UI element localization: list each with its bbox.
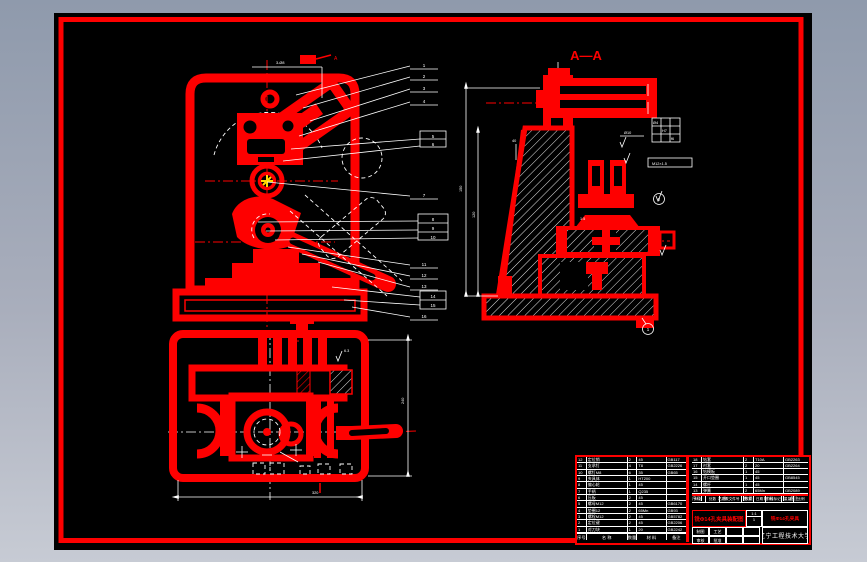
svg-text:11: 11 <box>422 262 427 267</box>
bom-left-rows: 12 定位销 2 45 GB117 11 支承钉 4 T8 GB2226 10 <box>577 457 686 533</box>
svg-text:10: 10 <box>430 235 436 240</box>
hatch-patch-right <box>330 370 352 394</box>
plan-dim-h: 240 <box>401 398 405 404</box>
bom-right-rows: 18 钻套 2 T10A GB2263 17 衬套 2 20 GB2264 16 <box>692 457 808 494</box>
svg-text:M12×1.5: M12×1.5 <box>652 162 667 166</box>
front-dim-label: 3-Ø8 <box>276 61 284 65</box>
locating-block <box>237 113 303 165</box>
svg-text:14: 14 <box>430 294 436 299</box>
svg-text:12: 12 <box>421 273 427 278</box>
svg-text:16: 16 <box>421 314 427 319</box>
svg-text:15: 15 <box>430 303 436 308</box>
section-label: A—A <box>570 48 602 63</box>
title-zone: 标记 处数 更改文件号 签字 日期 阶段标记 重量 比例 铣Φ14孔夹具装配图 … <box>692 494 808 542</box>
svg-text:Ø4: Ø4 <box>653 121 658 125</box>
hatch-patch-left <box>297 371 310 393</box>
svg-text:H7: H7 <box>662 129 667 133</box>
taper-label: 1:5 <box>580 217 585 221</box>
scale-cell: 1:1 1 <box>746 510 762 527</box>
plan-dim-w: 320 <box>312 491 318 495</box>
svg-text:120: 120 <box>472 212 476 218</box>
organization-name: 辽宁工程技术大学 <box>762 527 808 544</box>
svg-text:Ø10: Ø10 <box>624 131 631 135</box>
bom-left-header: 序号 名 称 数量 材 料 备注 <box>577 533 686 540</box>
cad-canvas[interactable]: A 3-Ø8 <box>0 0 867 562</box>
svg-text:f6: f6 <box>671 137 674 141</box>
svg-text:150: 150 <box>459 186 463 192</box>
handle-plan <box>336 426 396 440</box>
drawing-title: 铣Φ14孔夹具装配图 <box>692 510 746 527</box>
bom-table-left: 12 定位销 2 45 GB117 11 支承钉 4 T8 GB2226 10 <box>577 457 689 542</box>
part-name: 铣Φ14孔夹具 <box>762 510 808 527</box>
title-block: 12 定位销 2 45 GB117 11 支承钉 4 T8 GB2226 10 <box>575 455 811 545</box>
bom-table-right: 18 钻套 2 T10A GB2263 17 衬套 2 20 GB2264 16 <box>692 457 808 494</box>
svg-text:40: 40 <box>512 139 516 143</box>
revision-header: 标记 处数 更改文件号 签字 日期 阶段标记 重量 比例 <box>692 496 808 503</box>
finish-value: 6.3 <box>344 349 349 353</box>
svg-text:13: 13 <box>421 284 427 289</box>
signature-cells: 制图工艺 审核批准 <box>692 527 762 544</box>
